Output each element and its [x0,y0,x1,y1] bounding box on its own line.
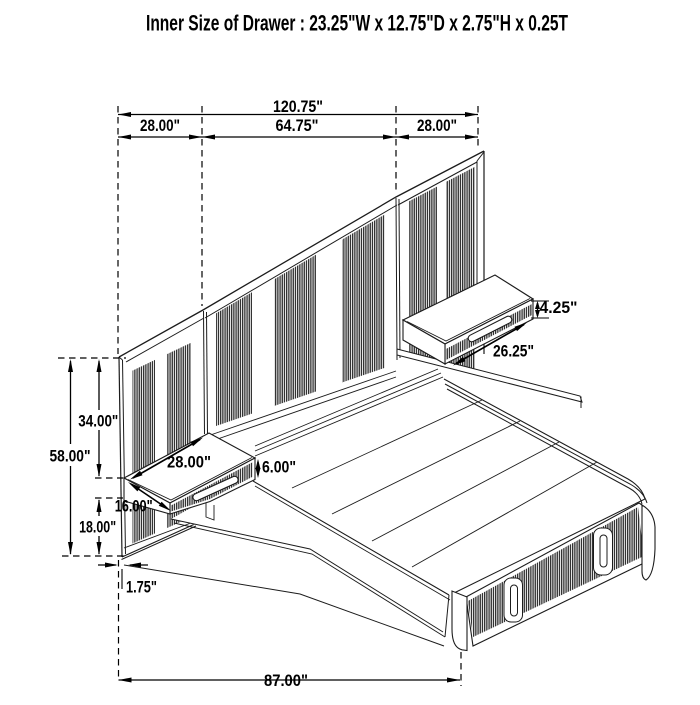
svg-text:87.00": 87.00" [264,671,308,690]
svg-text:16.00": 16.00" [115,497,153,516]
svg-text:34.00": 34.00" [78,412,118,431]
svg-text:Inner Size of Drawer : 23.25"W: Inner Size of Drawer : 23.25"W x 12.75"D… [146,11,568,36]
svg-text:28.00": 28.00" [167,453,211,472]
svg-text:64.75": 64.75" [276,116,319,135]
svg-text:58.00": 58.00" [50,447,91,466]
svg-text:4.25": 4.25" [540,298,578,317]
svg-text:28.00": 28.00" [140,116,180,135]
svg-text:6.00": 6.00" [262,458,296,477]
svg-text:26.25": 26.25" [493,342,534,361]
svg-text:28.00": 28.00" [417,116,457,135]
svg-text:120.75": 120.75" [273,97,323,116]
svg-text:1.75": 1.75" [126,578,157,597]
svg-text:18.00": 18.00" [79,518,116,537]
